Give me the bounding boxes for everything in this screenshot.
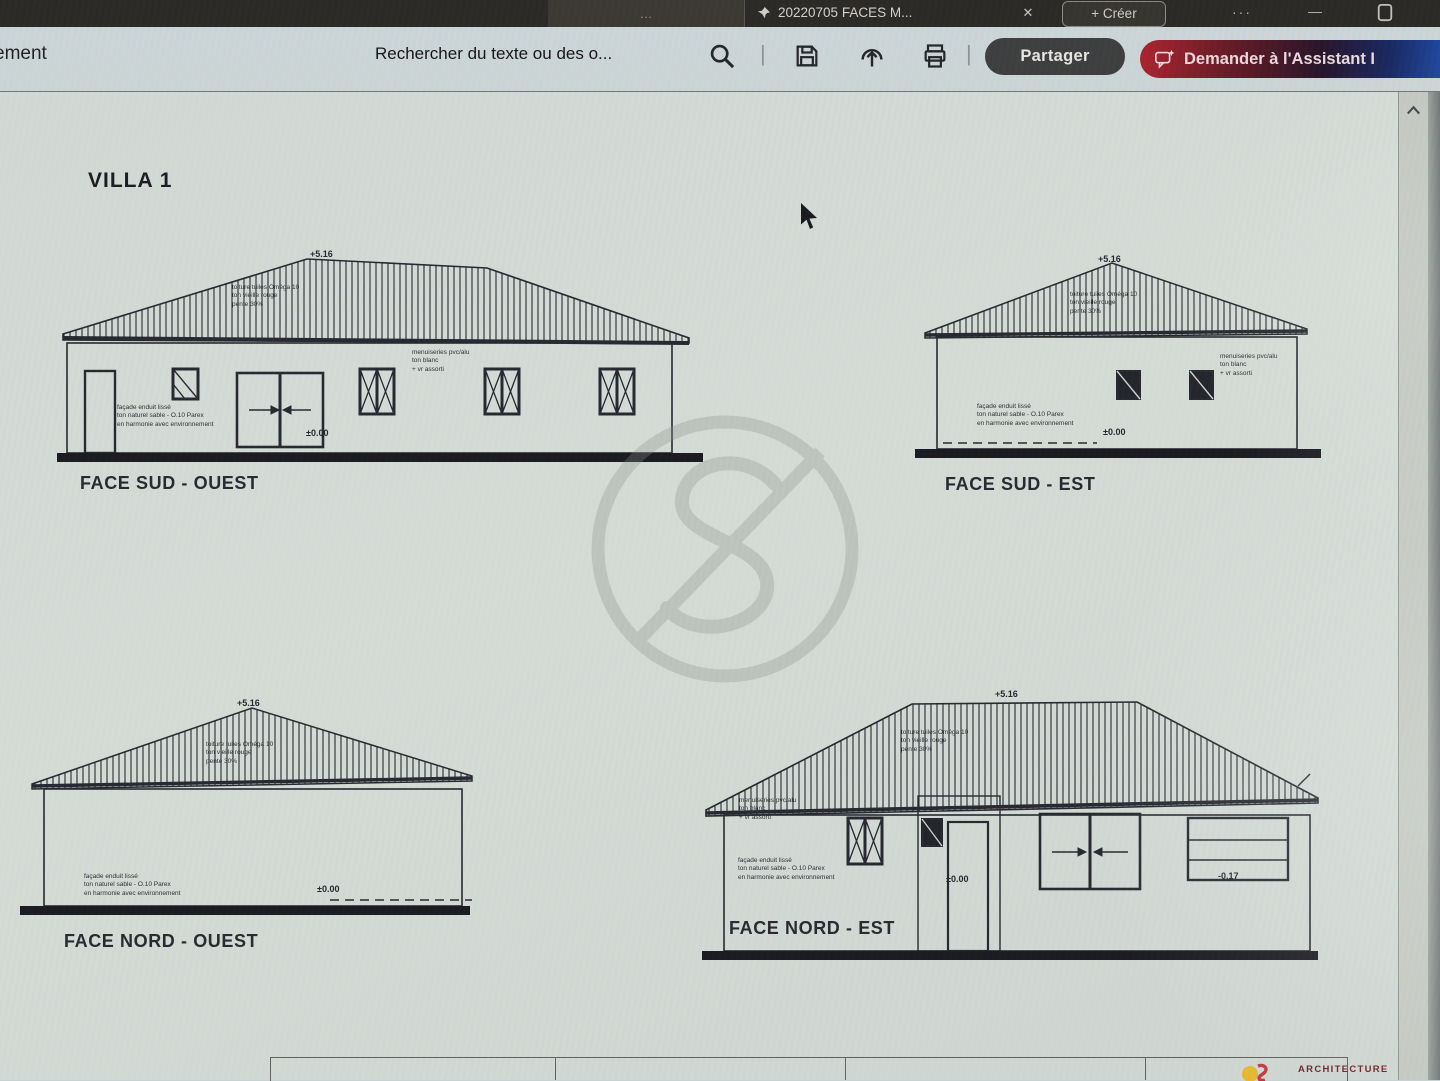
tab-close-icon[interactable]: ✕ [1018, 0, 1038, 27]
roof-note: toiture tuiles Oméga 10 ton vieille roug… [232, 284, 299, 309]
roof-note: toiture tuiles Oméga 10 ton vieille roug… [901, 729, 968, 754]
joinery-note: menuiseries pvc/alu ton blanc + vr assor… [412, 349, 469, 374]
floor-level-label: ±0.00 [317, 884, 339, 894]
joinery-note: menuiseries pvc/alu ton blanc + vr assor… [739, 797, 796, 822]
window-restore-icon[interactable] [1376, 3, 1394, 23]
upload-icon[interactable] [858, 42, 886, 70]
facade-note: façade enduit lissé ton naturel sable - … [977, 403, 1073, 428]
screen-bezel-edge [1428, 91, 1440, 1080]
titleblock-divider [555, 1057, 556, 1080]
search-input[interactable]: Rechercher du texte ou des o... [375, 44, 700, 64]
facade-note: façade enduit lissé ton naturel sable - … [117, 404, 213, 429]
architecture-brand-label: ARCHITECTURE [1298, 1064, 1389, 1075]
toolbar-divider: | [966, 41, 972, 67]
elevation-name: FACE NORD - EST [729, 918, 895, 939]
menu-label-partial: ement [0, 43, 47, 65]
titleblock-divider [1145, 1057, 1146, 1080]
roof-note: toiture tuiles Oméga 10 ton vieille roug… [1070, 291, 1137, 316]
tab-active-title[interactable]: 20220705 FACES M... [778, 0, 912, 27]
facade-note: façade enduit lissé ton naturel sable - … [84, 873, 180, 898]
mouse-cursor [800, 203, 818, 231]
chevron-up-icon[interactable] [1405, 103, 1422, 117]
save-icon[interactable] [793, 42, 821, 70]
roof-note: toiture tuiles Oméga 10 ton vieille roug… [206, 741, 273, 766]
create-button[interactable]: + Créer [1062, 1, 1166, 27]
pin-icon [756, 5, 772, 21]
print-icon[interactable] [921, 42, 949, 70]
minimize-icon[interactable]: — [1308, 0, 1322, 22]
titleblock-border [270, 1057, 1348, 1081]
share-button[interactable]: Partager [985, 38, 1125, 75]
tab-bar: … 20220705 FACES M... ✕ + Créer ··· — [0, 0, 1440, 27]
ask-assistant-button[interactable]: Demander à l'Assistant I [1140, 40, 1440, 78]
more-options-icon[interactable]: ··· [1232, 0, 1252, 24]
drawing-title: VILLA 1 [88, 169, 172, 193]
ask-assistant-label: Demander à l'Assistant I [1184, 50, 1375, 68]
vertical-scrollbar[interactable] [1398, 91, 1429, 1080]
tab-previous-document[interactable]: … [548, 0, 745, 27]
floor-level-label: ±0.00 [1103, 427, 1125, 437]
ridge-level-label: +5.16 [310, 249, 333, 259]
garage-level-label: -0.17 [1218, 871, 1239, 881]
joinery-note: menuiseries pvc/alu ton blanc + vr assor… [1220, 353, 1277, 378]
facade-note: façade enduit lissé ton naturel sable - … [738, 857, 834, 882]
architect-watermark-logo [585, 406, 865, 691]
pdf-page: VILLA 1 [0, 91, 1440, 1080]
floor-level-label: ±0.00 [946, 874, 968, 884]
titleblock-divider [845, 1057, 846, 1080]
ridge-level-label: +5.16 [1098, 254, 1121, 264]
ridge-level-label: +5.16 [237, 698, 260, 708]
elevation-name: FACE NORD - OUEST [64, 931, 258, 952]
ridge-level-label: +5.16 [995, 689, 1018, 699]
elevation-name: FACE SUD - EST [945, 474, 1095, 495]
elevation-name: FACE SUD - OUEST [80, 473, 259, 494]
search-icon[interactable] [708, 42, 736, 70]
floor-level-label: ±0.00 [306, 428, 328, 438]
viewer-toolbar: ement Rechercher du texte ou des o... | … [0, 27, 1440, 92]
toolbar-divider: | [760, 41, 766, 67]
architecture-logo [1238, 1063, 1284, 1081]
chat-sparkle-icon [1154, 48, 1176, 70]
